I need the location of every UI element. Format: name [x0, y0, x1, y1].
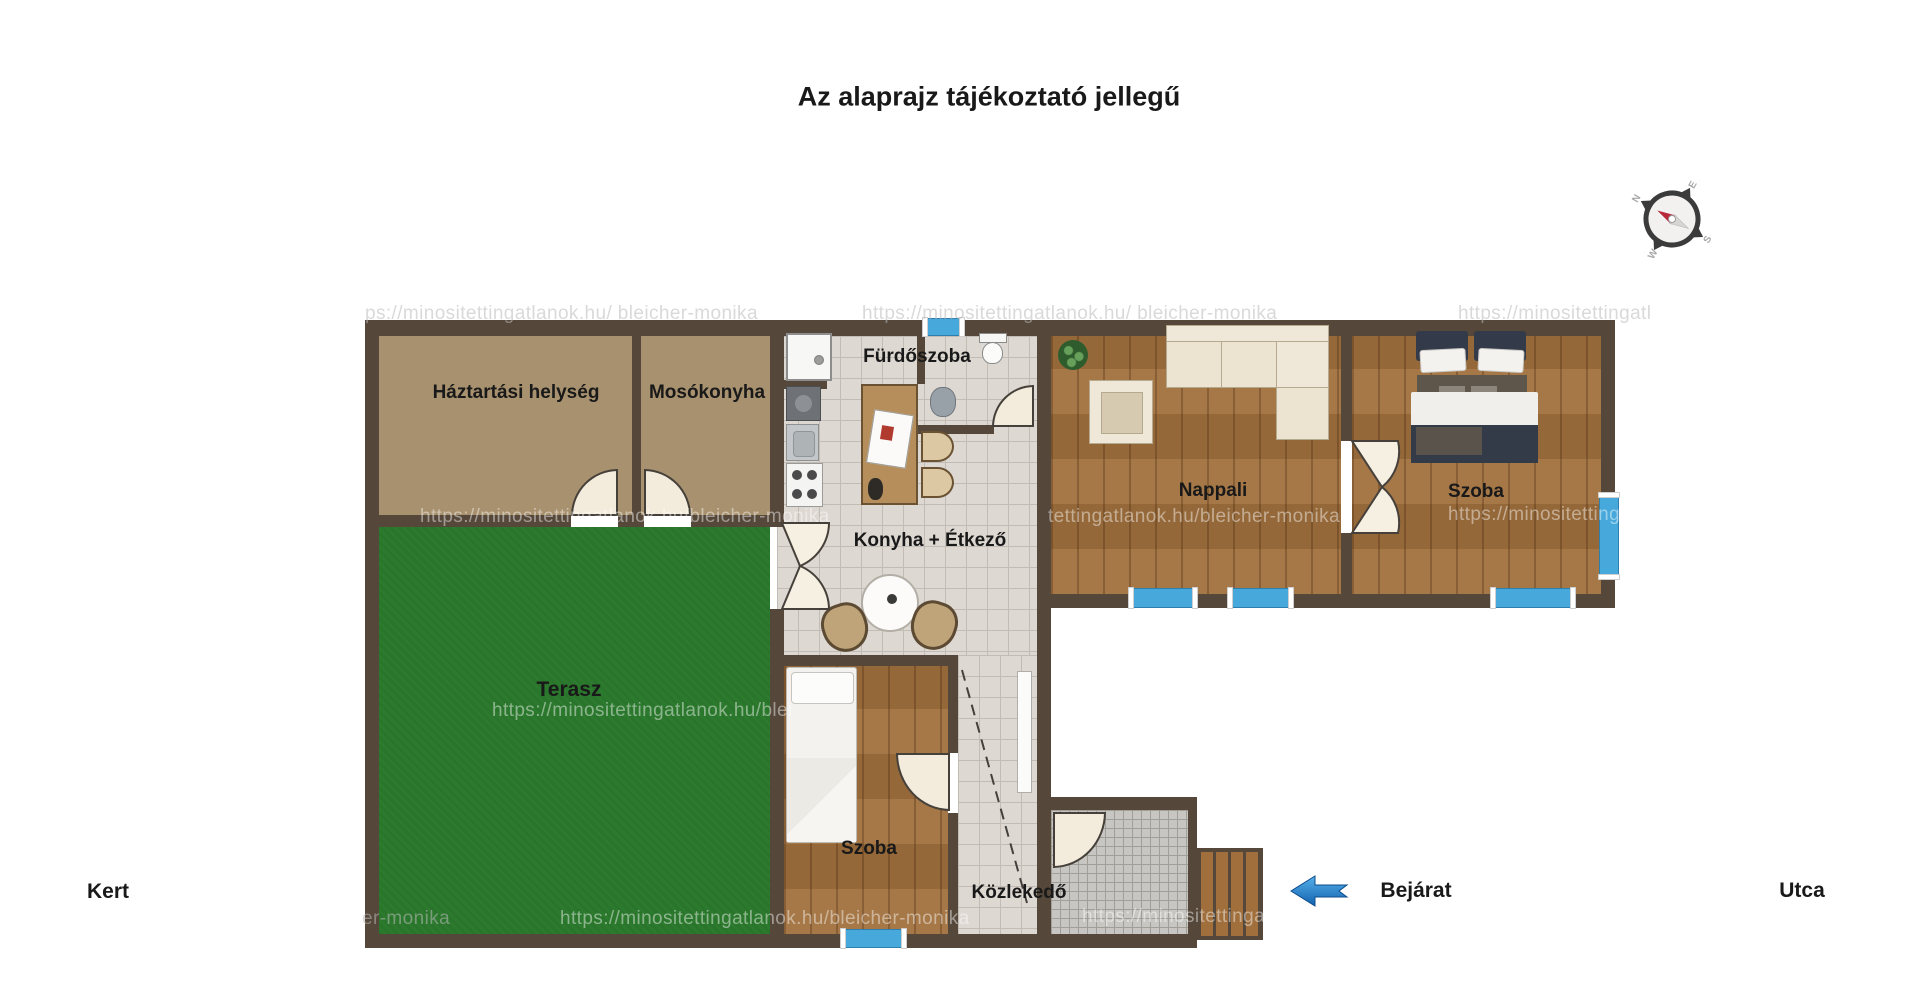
wall-nappali-szoba-1	[1341, 336, 1352, 441]
shower-drain-icon	[814, 355, 824, 365]
compass-icon: N E S W	[1626, 173, 1718, 265]
compass-n: N	[1630, 193, 1643, 205]
label-terasz: Terasz	[537, 678, 602, 702]
label-konyha: Konyha + Étkező	[854, 530, 1007, 552]
wall-bottom-long	[365, 934, 1197, 948]
corridor-door-leaf	[1017, 671, 1032, 793]
wall-kitchen-bedroom	[784, 655, 958, 666]
watermark: https://minositettingatlanok.hu/bleicher…	[560, 908, 970, 930]
toilet	[979, 333, 1007, 365]
single-bed	[786, 667, 857, 843]
entrance-arrow-icon	[1288, 872, 1350, 910]
page-title: Az alaprajz tájékoztató jellegű	[798, 82, 1181, 113]
label-szoba-small: Szoba	[841, 838, 897, 860]
compass-w: W	[1646, 247, 1661, 261]
kitchen-island	[861, 384, 918, 505]
bar-stool	[921, 467, 954, 498]
terrace-floor	[379, 527, 770, 934]
label-nappali: Nappali	[1179, 480, 1248, 502]
double-bed	[1411, 330, 1538, 463]
window-nappali-1	[1131, 588, 1195, 608]
wall-utility-divider	[632, 336, 641, 515]
watermark: https://minositettingatlanok.hu/blei	[492, 700, 793, 722]
label-bejarat: Bejárat	[1380, 879, 1451, 903]
shower	[786, 333, 832, 381]
pillow	[1419, 348, 1466, 373]
washing-machine	[786, 386, 821, 421]
kettle	[868, 478, 883, 500]
label-szoba-right: Szoba	[1448, 481, 1504, 503]
label-haztartasi: Háztartási helység	[433, 382, 600, 404]
watermark: https://minositettingatlanok.hu/bleicher…	[420, 506, 830, 528]
label-utca: Utca	[1779, 879, 1825, 903]
wall-nappali-szoba-2	[1341, 533, 1352, 594]
pillow	[1477, 348, 1524, 373]
label-kozlekedo: Közlekedő	[971, 882, 1066, 904]
window-nappali-2	[1230, 588, 1291, 608]
window-szoba-bottom	[1493, 588, 1573, 608]
wall-entry-top	[1051, 797, 1197, 810]
watermark: https://minositettingatl	[1458, 303, 1651, 325]
bar-stool	[921, 431, 954, 462]
window-bedroom-small	[843, 929, 904, 948]
watermark: ps://minositettingatlanok.hu/ bleicher-m…	[365, 303, 758, 325]
pillow	[791, 672, 854, 704]
wall-terrace-right-lower	[770, 609, 784, 948]
watermark: er-monika	[362, 908, 450, 930]
wall-terrace-right-upper	[770, 320, 784, 527]
sofa	[1166, 325, 1329, 440]
label-mosokonyha: Mosókonyha	[649, 382, 765, 404]
wall-middle-right	[1037, 320, 1051, 948]
watermark: https://minositettingat	[1082, 906, 1271, 928]
stove	[786, 463, 823, 507]
label-kert: Kert	[87, 880, 129, 904]
wall-left	[365, 320, 379, 948]
watermark: https://minositetting	[1448, 504, 1620, 526]
plant	[1058, 340, 1088, 370]
kitchen-sink	[786, 424, 819, 461]
compass-s: S	[1702, 234, 1715, 246]
armchair	[1089, 380, 1153, 444]
bath-sink	[930, 387, 956, 417]
watermark: tettingatlanok.hu/bleicher-monika	[1048, 506, 1340, 528]
wall-bedroom-corridor-1	[948, 666, 958, 753]
floor-plan-page: { "title": "Az alaprajz tájékoztató jell…	[0, 0, 1920, 1002]
watermark: https://minositettingatlanok.hu/ bleiche…	[862, 303, 1277, 325]
label-furdoszoba: Fürdőszoba	[863, 346, 971, 368]
